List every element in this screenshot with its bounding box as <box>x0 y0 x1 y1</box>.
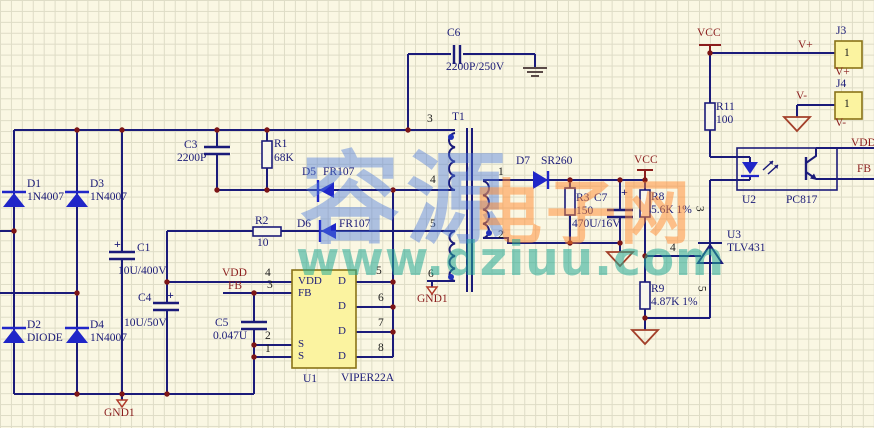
u1-pin-d3: D <box>338 326 346 337</box>
d5-value: FR107 <box>323 167 354 179</box>
gnd-triangle-r9 <box>632 330 658 344</box>
u1-ref: U1 <box>303 374 317 386</box>
u1-pin-vdd: VDD <box>298 276 322 287</box>
res-r8 <box>640 190 650 217</box>
vcc-label-output: VCC <box>697 28 721 40</box>
res-r2 <box>253 227 281 236</box>
diode-d7 <box>533 171 548 189</box>
res-r11 <box>705 103 715 130</box>
d3-ref: D3 <box>90 179 104 191</box>
r2-value: 10 <box>257 238 269 250</box>
u1-pin-fb: FB <box>298 288 311 299</box>
diode-d6 <box>320 220 336 242</box>
t1-pin6: 6 <box>428 269 434 281</box>
u1-pin-d2: D <box>338 301 346 312</box>
u2-ref: U2 <box>742 195 756 207</box>
res-r1 <box>262 141 272 168</box>
t1-ref: T1 <box>452 112 465 124</box>
diode-d4 <box>65 328 89 343</box>
d7-ref: D7 <box>516 156 530 168</box>
r9-ref: R9 <box>651 284 664 296</box>
c6-ref: C6 <box>447 28 460 40</box>
j4-pin: 1 <box>844 99 850 111</box>
u1-pin8-num: 8 <box>378 343 384 355</box>
r9-value: 4.87K 1% <box>651 297 698 309</box>
c5-ref: C5 <box>215 318 228 330</box>
d5-ref: D5 <box>302 167 316 179</box>
t1-pin2: 2 <box>498 230 504 242</box>
vplus-label-j3: V+ <box>835 67 850 79</box>
u3-pin4-num: 4 <box>670 243 676 255</box>
r11-ref: R11 <box>716 102 735 114</box>
vminus-label-wire: V- <box>796 91 807 103</box>
capacitors <box>108 45 634 330</box>
transformer-t1 <box>449 128 489 292</box>
t1-pin3: 3 <box>427 114 433 126</box>
u1-pin1-num: 1 <box>265 344 271 356</box>
d2-value: DIODE <box>27 333 63 345</box>
vcc-label-secondary: VCC <box>634 155 658 167</box>
c1-ref: C1 <box>137 243 150 255</box>
r8-ref: R8 <box>651 192 664 204</box>
u1-pin-d1: D <box>338 276 346 287</box>
diode-d1 <box>2 192 26 207</box>
u1-pin-s1: S <box>298 339 304 350</box>
d6-ref: D6 <box>297 219 311 231</box>
t1-pin1: 1 <box>498 167 504 179</box>
r3-ref: R3 <box>576 193 589 205</box>
u3-value: TLV431 <box>727 243 766 255</box>
c6-value: 2200P/250V <box>446 62 504 74</box>
d2-ref: D2 <box>27 320 41 332</box>
u3-pin5-num: 5 <box>695 286 707 292</box>
u3-pin3-num: 3 <box>693 206 705 212</box>
r1-value: 68K <box>274 153 294 165</box>
res-r3 <box>565 188 575 215</box>
diode-d3 <box>65 192 89 207</box>
ground-symbols <box>607 117 810 344</box>
optocoupler-u2 <box>737 148 837 190</box>
u1-pin-s2: S <box>298 351 304 362</box>
fb-label-right: FB <box>857 164 871 176</box>
d3-value: 1N4007 <box>90 192 127 204</box>
u1-pin5-num: 5 <box>376 266 382 278</box>
d1-value: 1N4007 <box>27 192 64 204</box>
opto-led <box>742 162 758 174</box>
vplus-label-wire: V+ <box>798 40 813 52</box>
c7-plus: + <box>621 186 628 198</box>
r2-ref: R2 <box>255 216 268 228</box>
schematic-canvas: D1 1N4007 D3 1N4007 D2 DIODE D4 1N4007 +… <box>0 0 874 428</box>
c7-ref: C7 <box>594 193 607 205</box>
gnd1-label-left: GND1 <box>104 408 135 420</box>
c4-value: 10U/50V <box>124 318 167 330</box>
d6-value: FR107 <box>339 219 370 231</box>
fb-net-label: FB <box>228 281 242 293</box>
d7-value: SR260 <box>541 156 572 168</box>
earth-ground-c6 <box>523 68 547 76</box>
u1-value: VIPER22A <box>341 373 394 385</box>
c1-value: 10U/400V <box>118 266 167 278</box>
c5-value: 0.047U <box>213 331 247 343</box>
d4-value: 1N4007 <box>90 333 127 345</box>
r3-value: 150 <box>576 206 593 218</box>
c3-ref: C3 <box>184 140 197 152</box>
res-r9 <box>640 282 650 309</box>
t1-pin4: 4 <box>430 175 436 187</box>
u1-pin7-num: 7 <box>378 318 384 330</box>
gnd1-triangle-left <box>117 400 127 407</box>
transformer-polarity-dots <box>448 134 492 280</box>
u2-value: PC817 <box>786 195 817 207</box>
r11-value: 100 <box>716 115 733 127</box>
u1-pin6-num: 6 <box>378 293 384 305</box>
schematic-graphics <box>0 0 874 428</box>
j4-ref: J4 <box>836 79 846 91</box>
vdd-label-right: VDD <box>851 138 874 150</box>
d1-ref: D1 <box>27 179 41 191</box>
gnd-triangle-j4 <box>784 117 810 131</box>
t1-pin5: 5 <box>430 219 436 231</box>
j3-pin: 1 <box>844 48 850 60</box>
c7-value: 470U/16V <box>572 219 621 231</box>
c4-plus: + <box>167 289 174 301</box>
c4-ref: C4 <box>138 293 151 305</box>
wires <box>0 45 874 400</box>
gnd-triangle-c7 <box>607 252 633 266</box>
vdd-net-label: VDD <box>222 268 247 280</box>
j3-ref: J3 <box>836 26 846 38</box>
u1-pin4-num: 4 <box>265 268 271 280</box>
r1-ref: R1 <box>274 139 287 151</box>
u1-pin3-num: 3 <box>267 280 273 292</box>
d4-ref: D4 <box>90 320 104 332</box>
u1-pin2-num: 2 <box>265 331 271 343</box>
u3-ref: U3 <box>727 230 741 242</box>
gnd1-label-aux: GND1 <box>417 294 448 306</box>
c3-value: 2200P <box>177 153 206 165</box>
vminus-label-j4: V- <box>835 118 846 130</box>
diode-d2 <box>2 328 26 343</box>
u1-pin-d4: D <box>338 351 346 362</box>
c1-plus: + <box>114 238 121 250</box>
r8-value: 5.6K 1% <box>651 205 692 217</box>
